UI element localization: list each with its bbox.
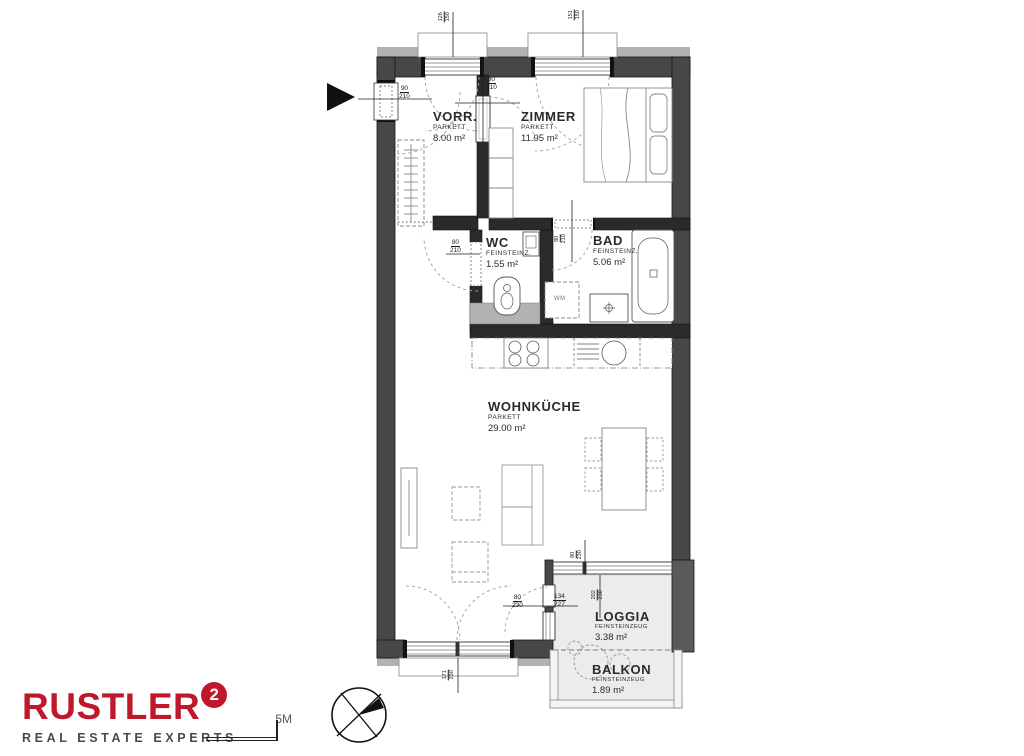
floorplan-page: VORR. PARKETT 8.00 m² ZIMMER PARKETT 11.… [0, 0, 1024, 756]
floorplan-drawing [0, 0, 1024, 756]
room-label-wc: WC FEINSTEINZ. 1.55 m² [486, 236, 531, 269]
zimmer-furniture [489, 88, 672, 218]
dim-loggia-glazing-a: 80 230 [570, 550, 584, 559]
room-label-bad: BAD FEINSTEINZ. 5.06 m² [593, 234, 638, 267]
dim-wc-door: 80 210 [450, 239, 461, 255]
dim-window-bottom: 171 230 [442, 669, 456, 680]
living-furniture [401, 428, 663, 582]
shelf [489, 128, 513, 218]
dim-loggia-door: 80 230 [512, 594, 523, 610]
dim-loggia-glazing-b: 202 230 [591, 589, 605, 600]
room-label-wohnkueche: WOHNKÜCHE PARKETT 29.00 m² [488, 400, 581, 433]
brand-name: RUSTLER [22, 688, 200, 725]
room-label-balkon: BALKON FEINSTEINZEUG 1.89 m² [592, 663, 651, 695]
sofa [502, 465, 543, 545]
coffee-table [452, 487, 480, 520]
wardrobe [398, 140, 424, 226]
dim-window-top-right: 151 150 [568, 9, 582, 20]
dim-entrance-door: 90 210 [399, 85, 410, 101]
washing-machine-label: WM [554, 296, 566, 302]
scale-tick [276, 720, 278, 740]
dim-loggia-window: 134 227 [553, 593, 566, 609]
scale-label: 5M [275, 712, 292, 726]
entrance-arrow-icon [327, 83, 355, 111]
room-label-zimmer: ZIMMER PARKETT 11.95 m² [521, 110, 576, 143]
dining-table [602, 428, 646, 510]
north-compass-icon [328, 684, 392, 748]
dim-bad-door: 80 210 [554, 234, 568, 243]
dim-zimmer-door: 80 210 [486, 76, 497, 92]
side-table [452, 542, 488, 582]
scale-bar: 5M [206, 712, 292, 746]
scale-line [206, 737, 278, 741]
room-label-loggia: LOGGIA FEINSTEINZEUG 3.38 m² [595, 610, 650, 642]
dim-window-top-left: 126 150 [438, 11, 452, 22]
brand-badge-icon: 2 [201, 682, 227, 708]
room-label-vorraum: VORR. PARKETT 8.00 m² [433, 110, 477, 143]
kitchen [472, 338, 672, 368]
